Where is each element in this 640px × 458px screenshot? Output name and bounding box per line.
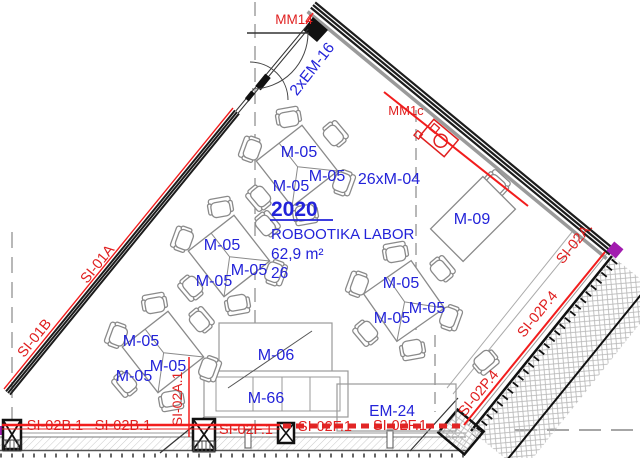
room-number-label: 2020	[271, 198, 318, 221]
mm1c-equipment-symbol	[414, 116, 458, 159]
chair-m04	[244, 182, 275, 213]
chair-m04	[206, 196, 234, 219]
table-label: M-05	[273, 178, 310, 195]
table-label: M-05	[374, 310, 411, 327]
table-label: M-05	[123, 333, 160, 350]
fire-label-si02b1-b: SI-02B.1	[95, 418, 151, 434]
chair-m04	[186, 304, 217, 335]
room-area-label: 62,9 m²	[271, 246, 324, 263]
insulation-block	[193, 441, 215, 452]
desk-label: M-09	[454, 211, 491, 228]
marker-mm1c-label: MM1c	[388, 103, 424, 118]
chair-m04	[427, 253, 458, 284]
fire-label-si02a1: SI-02A.1	[169, 372, 185, 427]
floor-plan-canvas: 2020 ROBOOTIKA LABOR 62,9 m² 26 M-05 M-0…	[0, 0, 640, 458]
table-group	[344, 241, 463, 362]
chair-m04	[320, 118, 351, 149]
table-label: M-05	[196, 273, 233, 290]
door-swing-arc-small	[250, 62, 288, 100]
room-name-label: ROBOOTIKA LABOR	[271, 226, 415, 243]
chair-m04	[274, 106, 302, 129]
chair-m04	[224, 293, 252, 316]
table-label: M-05	[383, 275, 420, 292]
fire-label-si02b1-a: SI-02B.1	[27, 418, 83, 434]
chair-m04	[381, 241, 409, 264]
floor-plan: 2020 ROBOOTIKA LABOR 62,9 m² 26 M-05 M-0…	[0, 0, 640, 458]
table-label: M-05	[281, 144, 318, 161]
table-label: M-05	[309, 168, 346, 185]
room-capacity-label: 26	[271, 265, 288, 282]
table-label: M-05	[231, 262, 268, 279]
bottom-band-hatch	[0, 437, 466, 450]
table-label: M-05	[204, 237, 241, 254]
insulation-block	[3, 440, 21, 451]
table-label: M-05	[409, 300, 446, 317]
chair-m04	[399, 338, 427, 361]
table-label: M-05	[116, 368, 153, 385]
bench-label: M-66	[248, 390, 285, 407]
fire-label-si02f1-a: SI-02F.1	[219, 422, 273, 438]
marker-mm14-label: MM14	[275, 12, 313, 27]
fire-label-si02f1-b: SI-02F.1	[298, 419, 352, 435]
fire-label-si02f1-c: SI-02F.1	[373, 418, 427, 434]
chair-m04	[140, 292, 168, 315]
chairs-count-label: 26xM-04	[358, 171, 420, 188]
door-top	[236, 13, 313, 113]
cabinet-label: M-06	[258, 347, 295, 364]
door-leaf-block-b	[245, 91, 255, 102]
